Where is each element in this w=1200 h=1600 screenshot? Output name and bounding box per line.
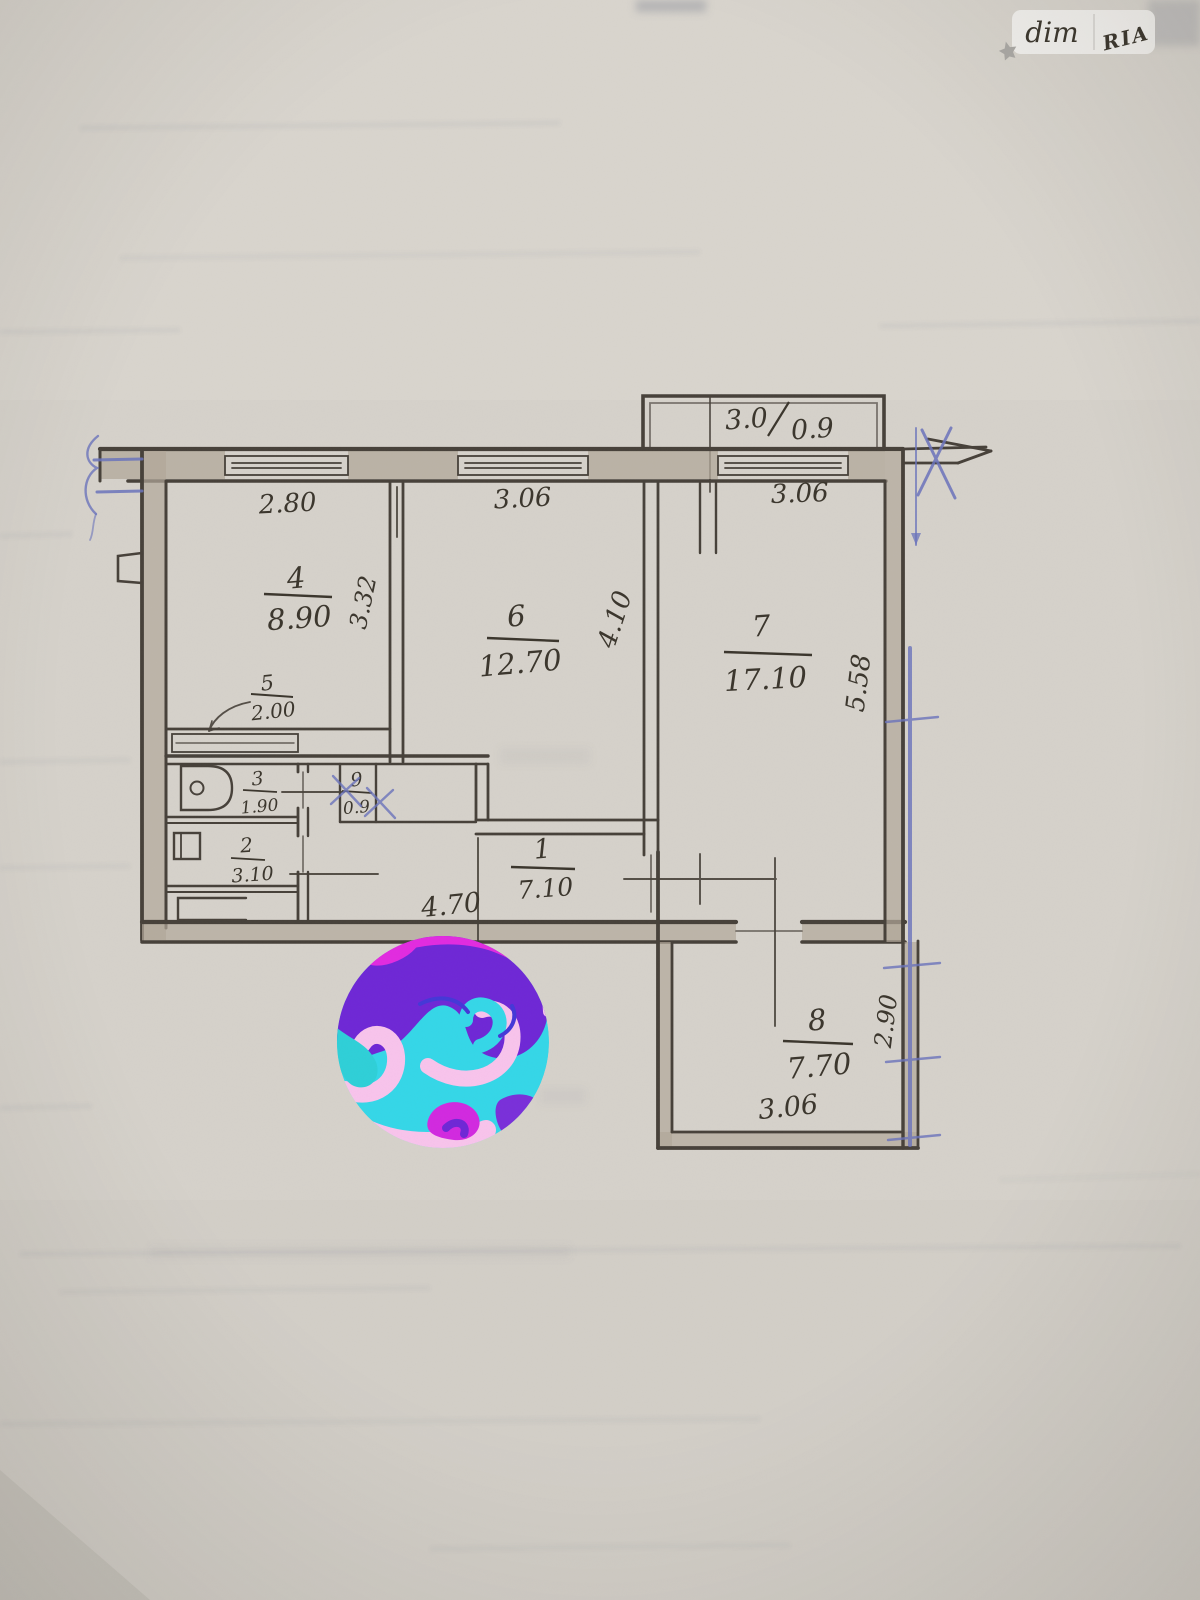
vignette-overlay [0,0,1200,1600]
floorplan-canvas: 3.0 0.9 2.80 3.06 3.06 4 8.90 6 12.70 7 … [0,0,1200,1600]
scanned-floorplan-photo: 3.0 0.9 2.80 3.06 3.06 4 8.90 6 12.70 7 … [0,0,1200,1600]
